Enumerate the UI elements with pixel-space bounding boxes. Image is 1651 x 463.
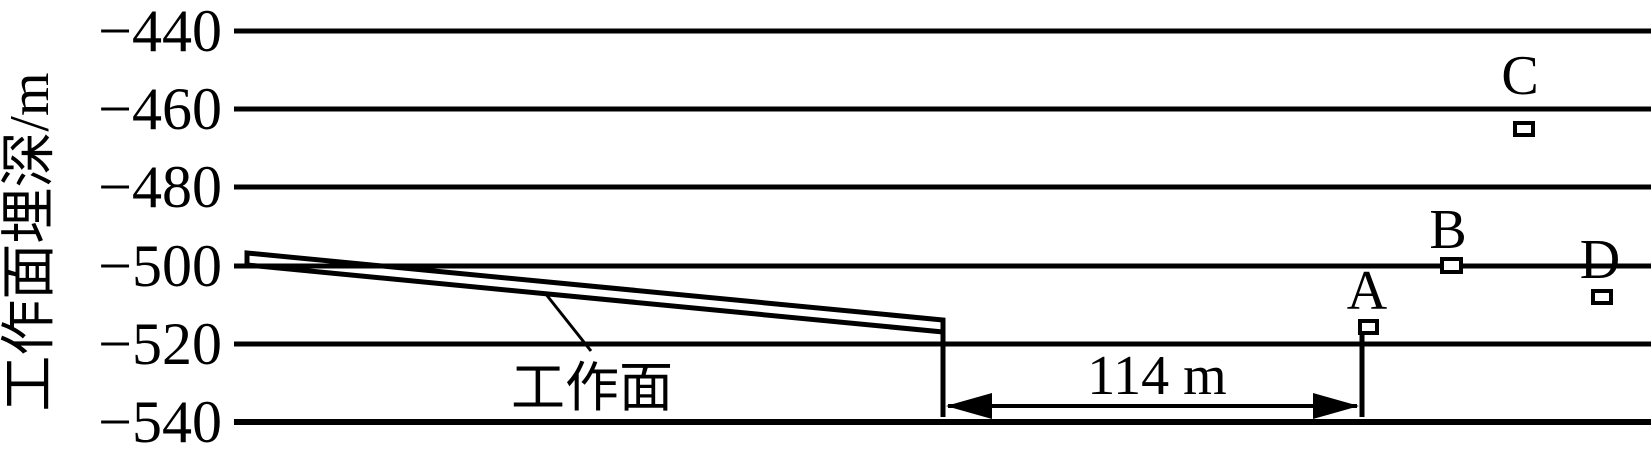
- point-markers: [1360, 123, 1611, 333]
- y-tick-label-440: −440: [60, 0, 222, 62]
- marker-point-a: [1360, 321, 1377, 333]
- working-face-depth-chart: 工作面埋深/m −440 −460 −480 −500 −520 −540 A …: [0, 0, 1651, 463]
- y-axis-title: 工作面埋深/m: [2, 72, 58, 411]
- working-face-label: 工作面: [511, 361, 673, 415]
- plot-canvas: [0, 0, 1651, 463]
- y-tick-label-500: −500: [60, 235, 222, 297]
- point-label-a: A: [1347, 263, 1387, 319]
- y-tick-label-460: −460: [60, 78, 222, 140]
- marker-point-d: [1593, 291, 1611, 303]
- y-tick-label-520: −520: [60, 313, 222, 375]
- y-tick-label-540: −540: [60, 391, 222, 453]
- point-label-d: D: [1580, 232, 1620, 288]
- dimension-arrowhead-right: [1313, 393, 1359, 419]
- point-label-c: C: [1501, 48, 1538, 104]
- y-tick-label-480: −480: [60, 156, 222, 218]
- dimension-arrowhead-left: [946, 393, 992, 419]
- marker-point-c: [1515, 123, 1533, 135]
- distance-annotation: 114 m: [1087, 348, 1226, 404]
- point-label-b: B: [1429, 202, 1466, 258]
